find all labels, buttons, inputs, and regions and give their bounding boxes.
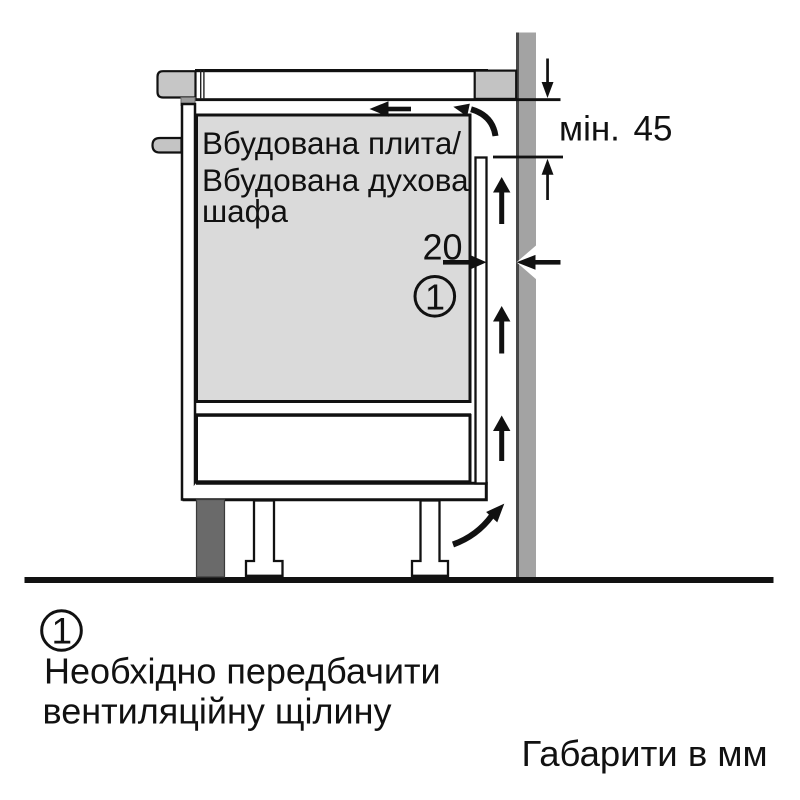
svg-text:вентиляційну щілину: вентиляційну щілину [43,691,392,732]
svg-text:Вбудована духова: Вбудована духова [202,163,469,198]
svg-text:Габарити в мм: Габарити в мм [522,733,768,774]
svg-text:45: 45 [634,110,673,149]
svg-text:мін.: мін. [559,110,620,149]
svg-text:1: 1 [425,277,445,318]
svg-text:шафа: шафа [202,194,288,229]
svg-text:1: 1 [52,611,73,652]
svg-text:Вбудована плита/: Вбудована плита/ [202,126,461,161]
svg-text:Необхідно передбачити: Необхідно передбачити [44,651,441,692]
